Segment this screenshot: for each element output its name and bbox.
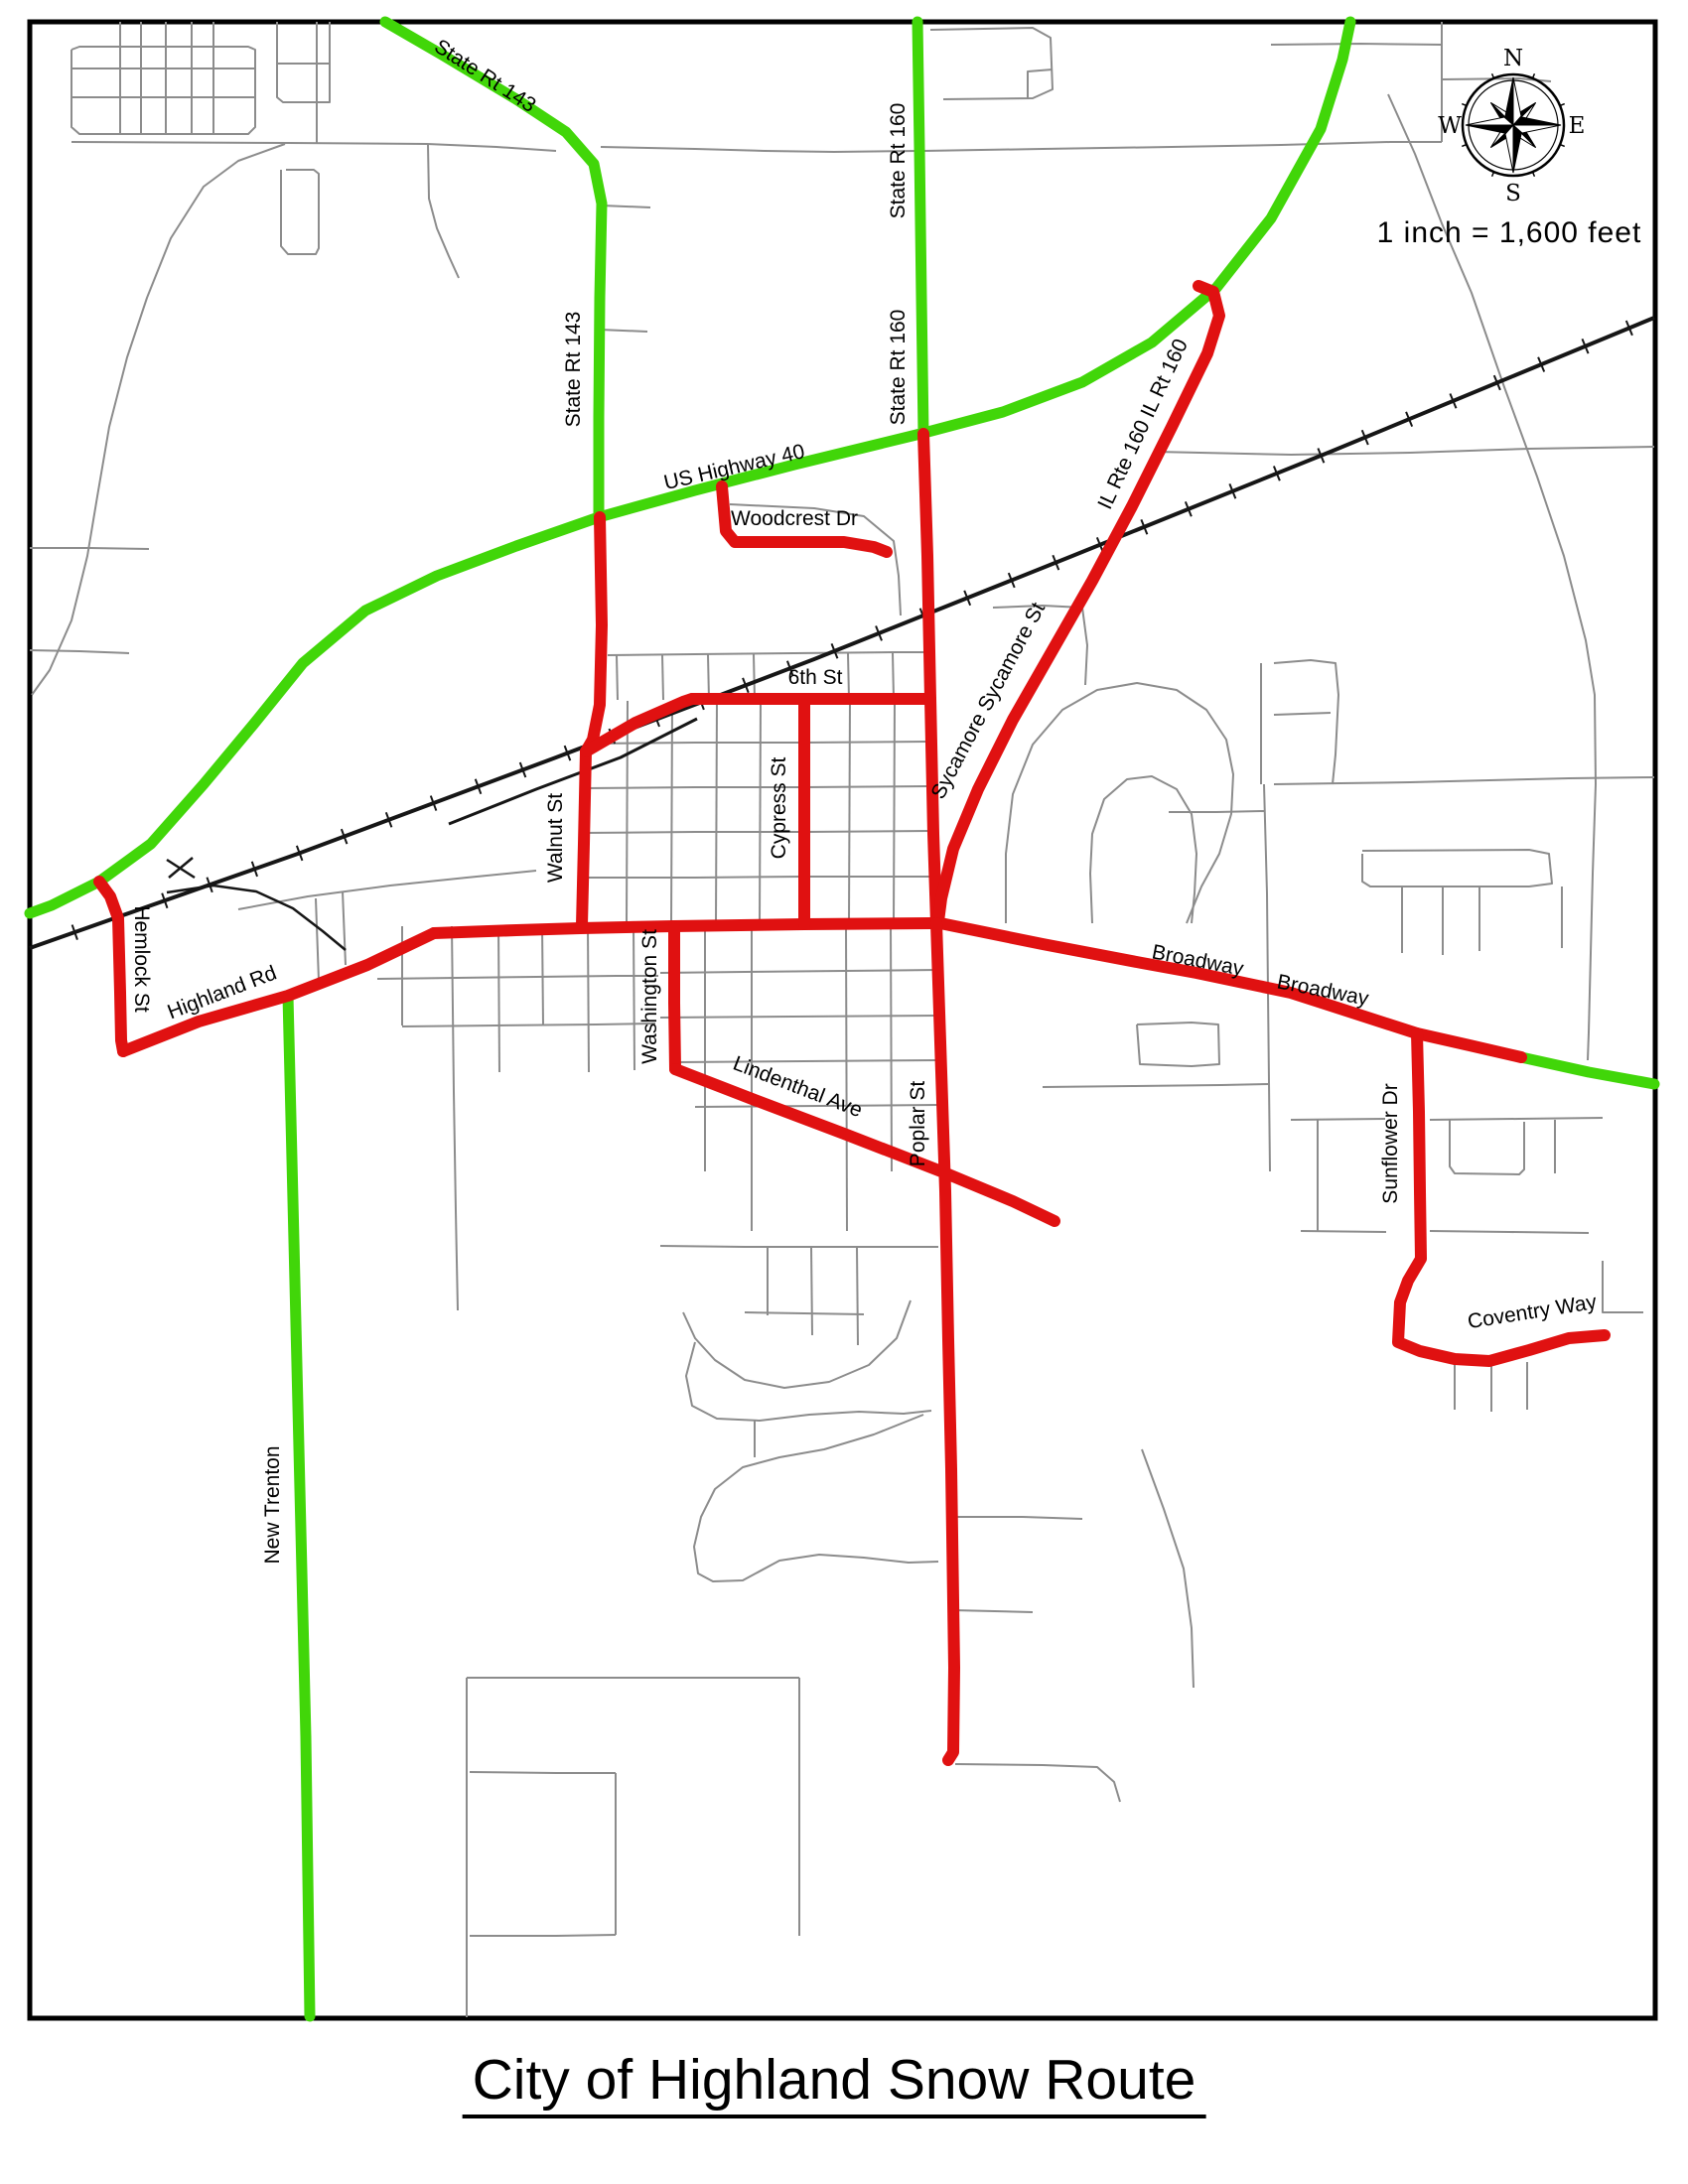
compass-n-label: N [1503,46,1523,71]
compass-ring-tick [1560,145,1565,147]
map-page: State Rt 143State Rt 143State Rt 160Stat… [0,0,1688,2184]
street-35 [848,653,849,699]
compass-ring-tick [1533,73,1535,78]
street-45 [849,699,850,923]
street-88 [857,1247,858,1345]
compass-ring-tick [1492,172,1494,177]
map-frame [30,22,1655,2018]
compass-ring-tick [1533,172,1535,177]
street-44 [760,700,761,924]
compass-rose-icon: N E S W [1434,42,1593,210]
street-20 [1271,44,1442,45]
street-91 [498,926,499,1072]
compass-star-point [1513,77,1521,125]
compass-star-point [1513,117,1561,125]
street-label-5: Woodcrest Dr [731,507,858,530]
compass-ring-tick [1462,104,1467,106]
street-label-12: Hemlock St [130,905,153,1013]
street-label-9: Cypress St [768,756,790,859]
state-route-state-rt-160-north [917,22,923,434]
compass-star-point [1466,117,1513,125]
compass-star-point [1513,125,1561,133]
street-93 [588,925,589,1072]
street-70 [1301,1231,1386,1232]
street-65 [1291,1119,1385,1120]
street-79 [891,924,892,1171]
street-label-14: New Trenton [261,1445,284,1564]
street-84 [660,1246,938,1247]
street-label-3: State Rt 160 [887,310,910,426]
street-label-1: State Rt 143 [562,312,585,428]
street-40 [582,877,933,878]
compass-star-point [1466,125,1513,133]
snow-route-walnut-st [582,751,586,925]
compass-star [1466,77,1561,173]
street-52 [1169,811,1264,812]
compass-star-point [1513,125,1521,173]
street-label-11: Washington St [638,929,661,1064]
street-36 [893,653,894,699]
compass-ring-tick [1462,145,1467,147]
street-42 [671,701,672,925]
street-label-2: State Rt 160 [887,103,910,219]
street-87 [811,1247,812,1335]
compass-star-point [1505,125,1513,173]
street-94 [633,925,634,1070]
street-92 [542,925,543,1025]
street-label-19: Sunflower Dr [1379,1083,1402,1203]
street-25 [30,548,149,549]
street-31 [617,655,618,700]
street-43 [716,700,717,924]
compass-s-label: S [1505,181,1521,206]
street-label-8: 6th St [788,666,843,689]
map-title: City of Highland Snow Route [463,2047,1206,2118]
street-label-16: Poplar St [907,1081,929,1167]
street-32 [662,655,663,700]
compass-ring-tick [1492,73,1494,78]
compass-e-label: E [1569,113,1586,139]
compass-ring-tick [1560,104,1565,106]
compass-star-point [1505,77,1513,125]
snow-route-washington-st [674,926,675,1069]
street-108 [470,1935,616,1936]
compass-w-label: W [1438,113,1462,139]
street-46 [894,699,895,923]
map-canvas: State Rt 143State Rt 143State Rt 160Stat… [0,0,1688,2184]
street-109 [470,1772,616,1773]
scale-text: 1 inch = 1,600 feet [1321,216,1688,250]
street-label-10: Walnut St [544,793,567,883]
